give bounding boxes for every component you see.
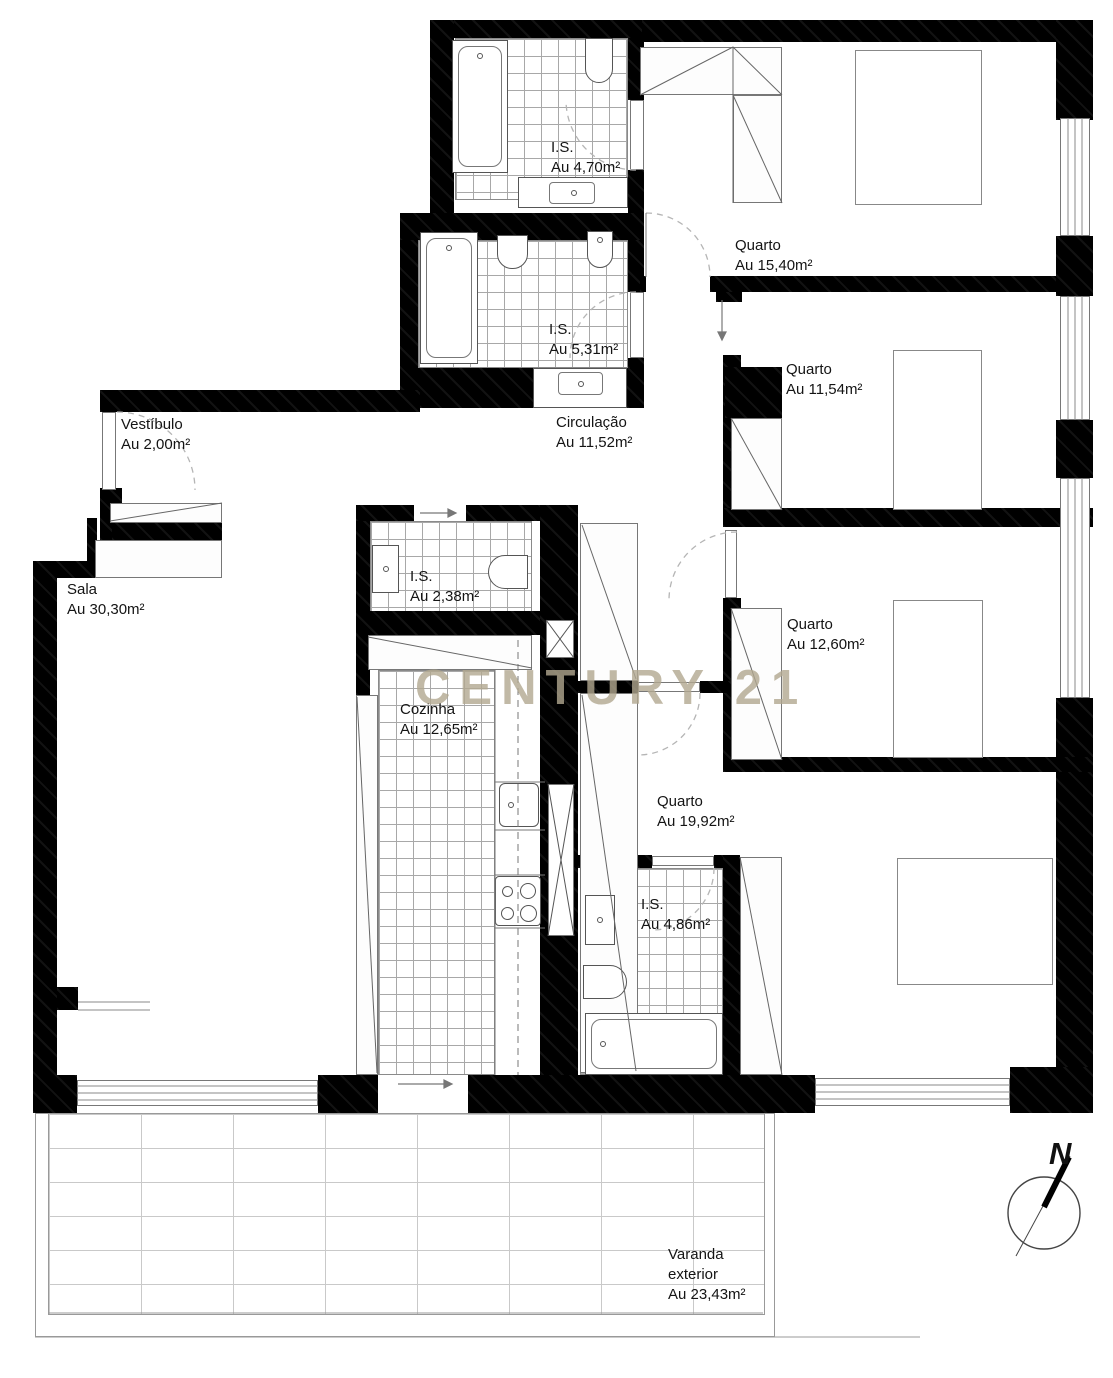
wall	[33, 1075, 77, 1113]
wall	[725, 367, 782, 418]
shaft	[548, 784, 574, 936]
balcony-outline	[35, 1113, 775, 1337]
room-label-varanda: Varanda exterior Au 23,43m²	[668, 1245, 746, 1305]
wall	[33, 561, 57, 1113]
kitchen-cabinet	[356, 695, 378, 1075]
wall	[627, 368, 644, 408]
stove	[495, 876, 541, 926]
wardrobe	[733, 95, 782, 203]
wardrobe-sliding-front	[95, 540, 222, 578]
wall	[100, 390, 420, 412]
room-area: Au 4,86m²	[641, 915, 710, 935]
room-label-sala: Sala Au 30,30m²	[67, 580, 145, 620]
wall	[716, 292, 742, 302]
room-area: Au 23,43m²	[668, 1285, 746, 1305]
sink	[585, 895, 615, 945]
room-name: Quarto	[735, 236, 813, 256]
room-area: Au 12,60m²	[787, 635, 865, 655]
wall	[1056, 20, 1093, 120]
room-label-circulacao: Circulação Au 11,52m²	[556, 413, 632, 453]
room-area: Au 2,38m²	[410, 587, 479, 607]
window	[1060, 478, 1090, 698]
room-name: Vestíbulo	[121, 415, 190, 435]
room-label-is-238: I.S. Au 2,38m²	[410, 567, 479, 607]
room-area: Au 11,54m²	[786, 380, 862, 400]
room-label-vestibulo: Vestíbulo Au 2,00m²	[121, 415, 190, 455]
wall	[468, 1075, 815, 1113]
room-area: Au 4,70m²	[551, 158, 620, 178]
room-name: Quarto	[787, 615, 865, 635]
sink-counter	[533, 368, 627, 408]
room-label-quarto-1260: Quarto Au 12,60m²	[787, 615, 865, 655]
room-name: I.S.	[410, 567, 479, 587]
room-area: Au 19,92m²	[657, 812, 735, 832]
wall	[430, 20, 642, 38]
toilet	[583, 965, 627, 999]
room-label-is-486: I.S. Au 4,86m²	[641, 895, 710, 935]
wall	[1010, 1067, 1093, 1113]
wall	[318, 1075, 378, 1113]
century21-watermark: CENTURY 21	[415, 660, 807, 716]
wall	[356, 611, 542, 635]
room-name: Quarto	[657, 792, 735, 812]
room-area: Au 2,00m²	[121, 435, 190, 455]
wardrobe	[740, 857, 782, 1075]
entry-door-leaf	[102, 412, 116, 490]
bed	[855, 50, 982, 205]
room-name: Sala	[67, 580, 145, 600]
bidet	[587, 231, 613, 268]
bed	[897, 858, 1053, 985]
toilet	[585, 38, 613, 83]
wall	[430, 20, 454, 238]
bathtub	[585, 1013, 723, 1075]
wardrobe	[110, 503, 222, 523]
sink-counter	[518, 177, 628, 208]
room-label-quarto-1992: Quarto Au 19,92m²	[657, 792, 735, 832]
bed	[893, 600, 983, 758]
room-name: Varanda	[668, 1245, 746, 1265]
bed	[893, 350, 982, 510]
wardrobe	[640, 47, 782, 95]
room-label-is-470: I.S. Au 4,70m²	[551, 138, 620, 178]
wardrobe	[731, 418, 782, 510]
room-label-quarto-1154: Quarto Au 11,54m²	[786, 360, 862, 400]
window	[815, 1078, 1010, 1106]
wall	[112, 521, 222, 540]
room-label-is-531: I.S. Au 5,31m²	[549, 320, 618, 360]
wall	[710, 276, 1093, 292]
room-area: Au 5,31m²	[549, 340, 618, 360]
window	[1060, 118, 1090, 236]
window	[1060, 296, 1090, 420]
wall	[640, 276, 646, 292]
wall	[723, 855, 740, 1077]
wall	[57, 987, 78, 1010]
door-leaf	[652, 856, 714, 866]
room-name: Quarto	[786, 360, 862, 380]
north-letter: N	[1049, 1136, 1071, 1172]
wall	[1056, 420, 1093, 478]
shaft	[546, 620, 574, 658]
bathtub	[452, 40, 508, 173]
wall	[1056, 236, 1093, 296]
wall	[33, 561, 95, 578]
door-opening	[414, 505, 466, 521]
room-area: Au 15,40m²	[735, 256, 813, 276]
sink	[372, 545, 399, 593]
wall	[642, 20, 1093, 42]
door-leaf	[630, 100, 644, 170]
room-name: exterior	[668, 1265, 746, 1285]
room-area: Au 30,30m²	[67, 600, 145, 620]
room-area: Au 11,52m²	[556, 433, 632, 453]
room-name: I.S.	[551, 138, 620, 158]
room-label-quarto-1540: Quarto Au 15,40m²	[735, 236, 813, 276]
bathtub	[420, 232, 478, 364]
toilet	[488, 555, 528, 589]
kitchen-sink	[499, 783, 539, 827]
room-name: Circulação	[556, 413, 632, 433]
floor-plan: I.S. Au 4,70m² Quarto Au 15,40m² I.S. Au…	[0, 0, 1113, 1378]
room-name: I.S.	[641, 895, 710, 915]
wall	[723, 508, 1093, 527]
door-leaf	[725, 530, 737, 598]
wall	[628, 170, 644, 216]
wall	[356, 521, 370, 613]
room-name: I.S.	[549, 320, 618, 340]
window	[77, 1080, 318, 1106]
wardrobe	[580, 523, 638, 681]
toilet	[497, 235, 528, 269]
door-leaf	[630, 292, 644, 358]
room-area: Au 12,65m²	[400, 720, 478, 740]
